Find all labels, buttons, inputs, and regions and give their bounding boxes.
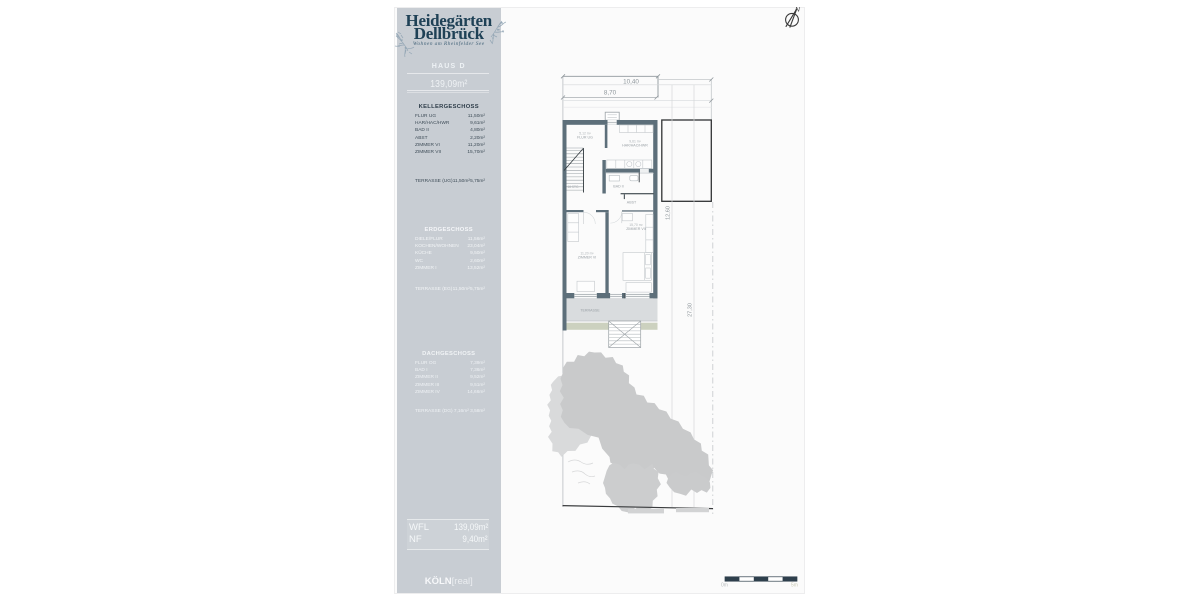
svg-text:ZIMMER VI: ZIMMER VI xyxy=(578,255,597,259)
svg-text:N: N xyxy=(795,7,800,14)
svg-text:10,40: 10,40 xyxy=(623,79,639,86)
svg-text:5m: 5m xyxy=(791,583,798,589)
svg-text:27,30: 27,30 xyxy=(688,303,694,317)
svg-text:12,60: 12,60 xyxy=(666,206,672,220)
svg-text:0m: 0m xyxy=(721,583,728,589)
svg-text:16 STG: 16 STG xyxy=(568,185,580,189)
svg-text:BAD II: BAD II xyxy=(613,185,623,189)
svg-text:8,70: 8,70 xyxy=(604,90,617,97)
svg-text:FLUR UG: FLUR UG xyxy=(577,135,593,139)
svg-text:HAR/HAC/HWR: HAR/HAC/HWR xyxy=(622,143,648,147)
svg-text:TERRASSE: TERRASSE xyxy=(580,309,600,313)
svg-text:ABST: ABST xyxy=(627,201,637,205)
svg-text:ZIMMER VII: ZIMMER VII xyxy=(626,227,646,231)
